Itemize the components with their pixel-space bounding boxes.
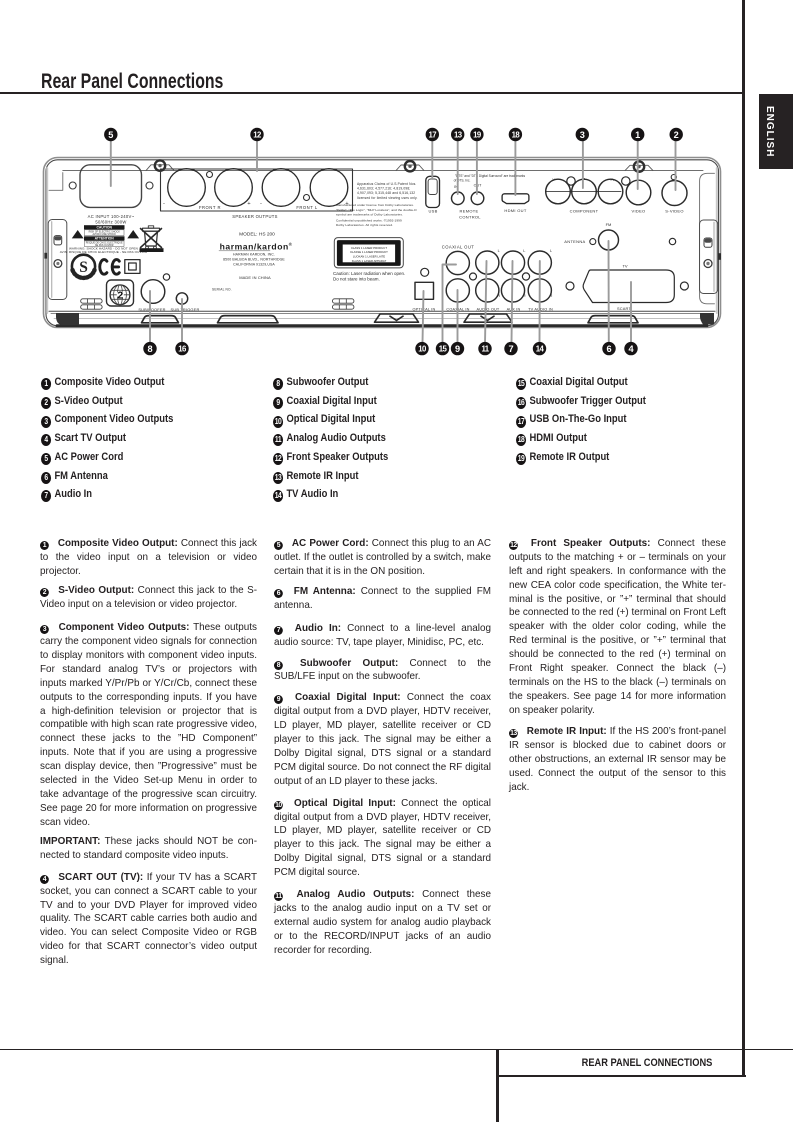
svg-text:SUB TRIGGER: SUB TRIGGER bbox=[171, 307, 200, 312]
svg-text:12: 12 bbox=[253, 131, 262, 140]
svg-text:Do not stare into beam.: Do not stare into beam. bbox=[333, 277, 380, 282]
svg-text:USB: USB bbox=[428, 209, 437, 214]
svg-text:HARMAN KARDON, INC.: HARMAN KARDON, INC. bbox=[233, 252, 275, 256]
svg-text:Caution: Laser radiation when: Caution: Laser radiation when open. bbox=[333, 271, 405, 276]
svg-text:S-VIDEO: S-VIDEO bbox=[665, 208, 684, 213]
svg-text:MODEL: HS 200: MODEL: HS 200 bbox=[239, 231, 275, 237]
svg-text:19: 19 bbox=[473, 131, 482, 140]
svg-text:1: 1 bbox=[635, 130, 640, 140]
svg-text:”Dolby”, ”Pro Logic”, ”MLP Los: ”Dolby”, ”Pro Logic”, ”MLP Lossless”, an… bbox=[336, 208, 417, 212]
svg-text:OUT: OUT bbox=[474, 184, 483, 188]
svg-text:8: 8 bbox=[147, 344, 152, 354]
svg-text:MADE IN CHINA: MADE IN CHINA bbox=[239, 275, 271, 280]
svg-text:16: 16 bbox=[178, 345, 187, 354]
svg-text:Pr: Pr bbox=[611, 177, 616, 182]
svg-text:R: R bbox=[523, 294, 526, 298]
svg-text:2: 2 bbox=[674, 130, 679, 140]
svg-text:4,907,093; 5,315,448 and 6,: 4,907,093; 5,315,448 and 6,516,132 bbox=[357, 191, 415, 195]
svg-text:L: L bbox=[498, 249, 500, 253]
svg-text:licensed for limited viewin: licensed for limited viewing uses only. bbox=[357, 196, 418, 200]
svg-text:SERIAL NO.: SERIAL NO. bbox=[212, 287, 232, 291]
svg-text:4: 4 bbox=[628, 344, 634, 354]
svg-text:14: 14 bbox=[536, 345, 545, 354]
svg-text:FM: FM bbox=[606, 222, 612, 227]
svg-text:SUBWOOFER: SUBWOOFER bbox=[138, 307, 165, 312]
svg-text:AUDIO OUT: AUDIO OUT bbox=[477, 308, 500, 312]
svg-text:Confidential unpublished works: Confidential unpublished works. ©1992-19… bbox=[336, 219, 402, 223]
svg-text:9: 9 bbox=[455, 344, 460, 354]
svg-text:R: R bbox=[550, 294, 553, 298]
svg-text:AC INPUT 100-240V~: AC INPUT 100-240V~ bbox=[88, 214, 135, 219]
svg-text:AUX IN: AUX IN bbox=[507, 308, 521, 312]
svg-text:7: 7 bbox=[508, 344, 513, 354]
svg-text:FRONT R: FRONT R bbox=[199, 205, 221, 210]
svg-text:Y: Y bbox=[552, 177, 555, 182]
svg-text:SCART: SCART bbox=[617, 306, 632, 311]
svg-text:CONTROL: CONTROL bbox=[459, 215, 481, 220]
svg-text:6: 6 bbox=[606, 344, 611, 354]
svg-text:COAXIAL OUT: COAXIAL OUT bbox=[442, 245, 474, 250]
svg-text:HDMI OUT: HDMI OUT bbox=[504, 208, 526, 213]
svg-text:3: 3 bbox=[580, 130, 585, 140]
svg-text:TV: TV bbox=[622, 264, 627, 269]
svg-text:13: 13 bbox=[454, 131, 463, 140]
svg-text:-: - bbox=[163, 201, 165, 207]
svg-text:+: + bbox=[247, 201, 251, 207]
svg-text:REMOTE: REMOTE bbox=[460, 209, 479, 214]
svg-text:Dolby Laboratories. All rights: Dolby Laboratories. All rights reserved. bbox=[336, 223, 393, 227]
svg-text:5: 5 bbox=[108, 130, 113, 140]
svg-text:CALIFORNIA 91329,USA: CALIFORNIA 91329,USA bbox=[233, 262, 275, 266]
svg-text:Apparatus Claims of U.S.Pat: Apparatus Claims of U.S.Patent Nos. bbox=[357, 182, 417, 186]
svg-text:Manufactured under license fro: Manufactured under license from Dolby La… bbox=[336, 203, 414, 207]
svg-text:18: 18 bbox=[512, 131, 521, 140]
svg-text:L: L bbox=[550, 249, 552, 253]
svg-text:CAUTION: CAUTION bbox=[96, 226, 112, 230]
svg-text:KLASS 1 LASER APPARAT: KLASS 1 LASER APPARAT bbox=[352, 259, 387, 263]
svg-text:50/60Hz 300W: 50/60Hz 300W bbox=[95, 220, 126, 225]
svg-text:SPEAKER OUTPUTS: SPEAKER OUTPUTS bbox=[232, 214, 277, 219]
svg-text:ATTENTION: ATTENTION bbox=[95, 237, 115, 241]
svg-text:AVIS: RISQUE DE CHOC ELECTRIQU: AVIS: RISQUE DE CHOC ELECTRIQUE - NE PAS… bbox=[60, 250, 148, 254]
svg-text:4,631,603; 4,577,216; 4,819,: 4,631,603; 4,577,216; 4,819,098; bbox=[357, 187, 410, 191]
svg-text:of DTS, Inc.: of DTS, Inc. bbox=[454, 179, 471, 183]
svg-text:2: 2 bbox=[117, 290, 123, 302]
svg-text:S: S bbox=[79, 259, 88, 276]
svg-text:COMPONENT: COMPONENT bbox=[570, 208, 599, 213]
svg-text:ANTENNA: ANTENNA bbox=[564, 239, 585, 244]
svg-text:-: - bbox=[260, 201, 262, 207]
svg-text:10: 10 bbox=[418, 345, 427, 354]
svg-text:FRONT L: FRONT L bbox=[296, 205, 318, 210]
svg-text:symbol are trademarks of Dolby: symbol are trademarks of Dolby Laborator… bbox=[336, 212, 403, 216]
svg-text:L: L bbox=[523, 249, 525, 253]
svg-text:VIDEO: VIDEO bbox=[632, 208, 646, 213]
svg-text:harman/kardon®: harman/kardon® bbox=[220, 241, 293, 251]
svg-text:17: 17 bbox=[429, 131, 437, 140]
svg-text:8500 BALBOA BLVD., NORTHRIDGE: 8500 BALBOA BLVD., NORTHRIDGE bbox=[223, 257, 285, 261]
svg-text:R: R bbox=[497, 294, 500, 298]
svg-text:15: 15 bbox=[439, 345, 448, 354]
